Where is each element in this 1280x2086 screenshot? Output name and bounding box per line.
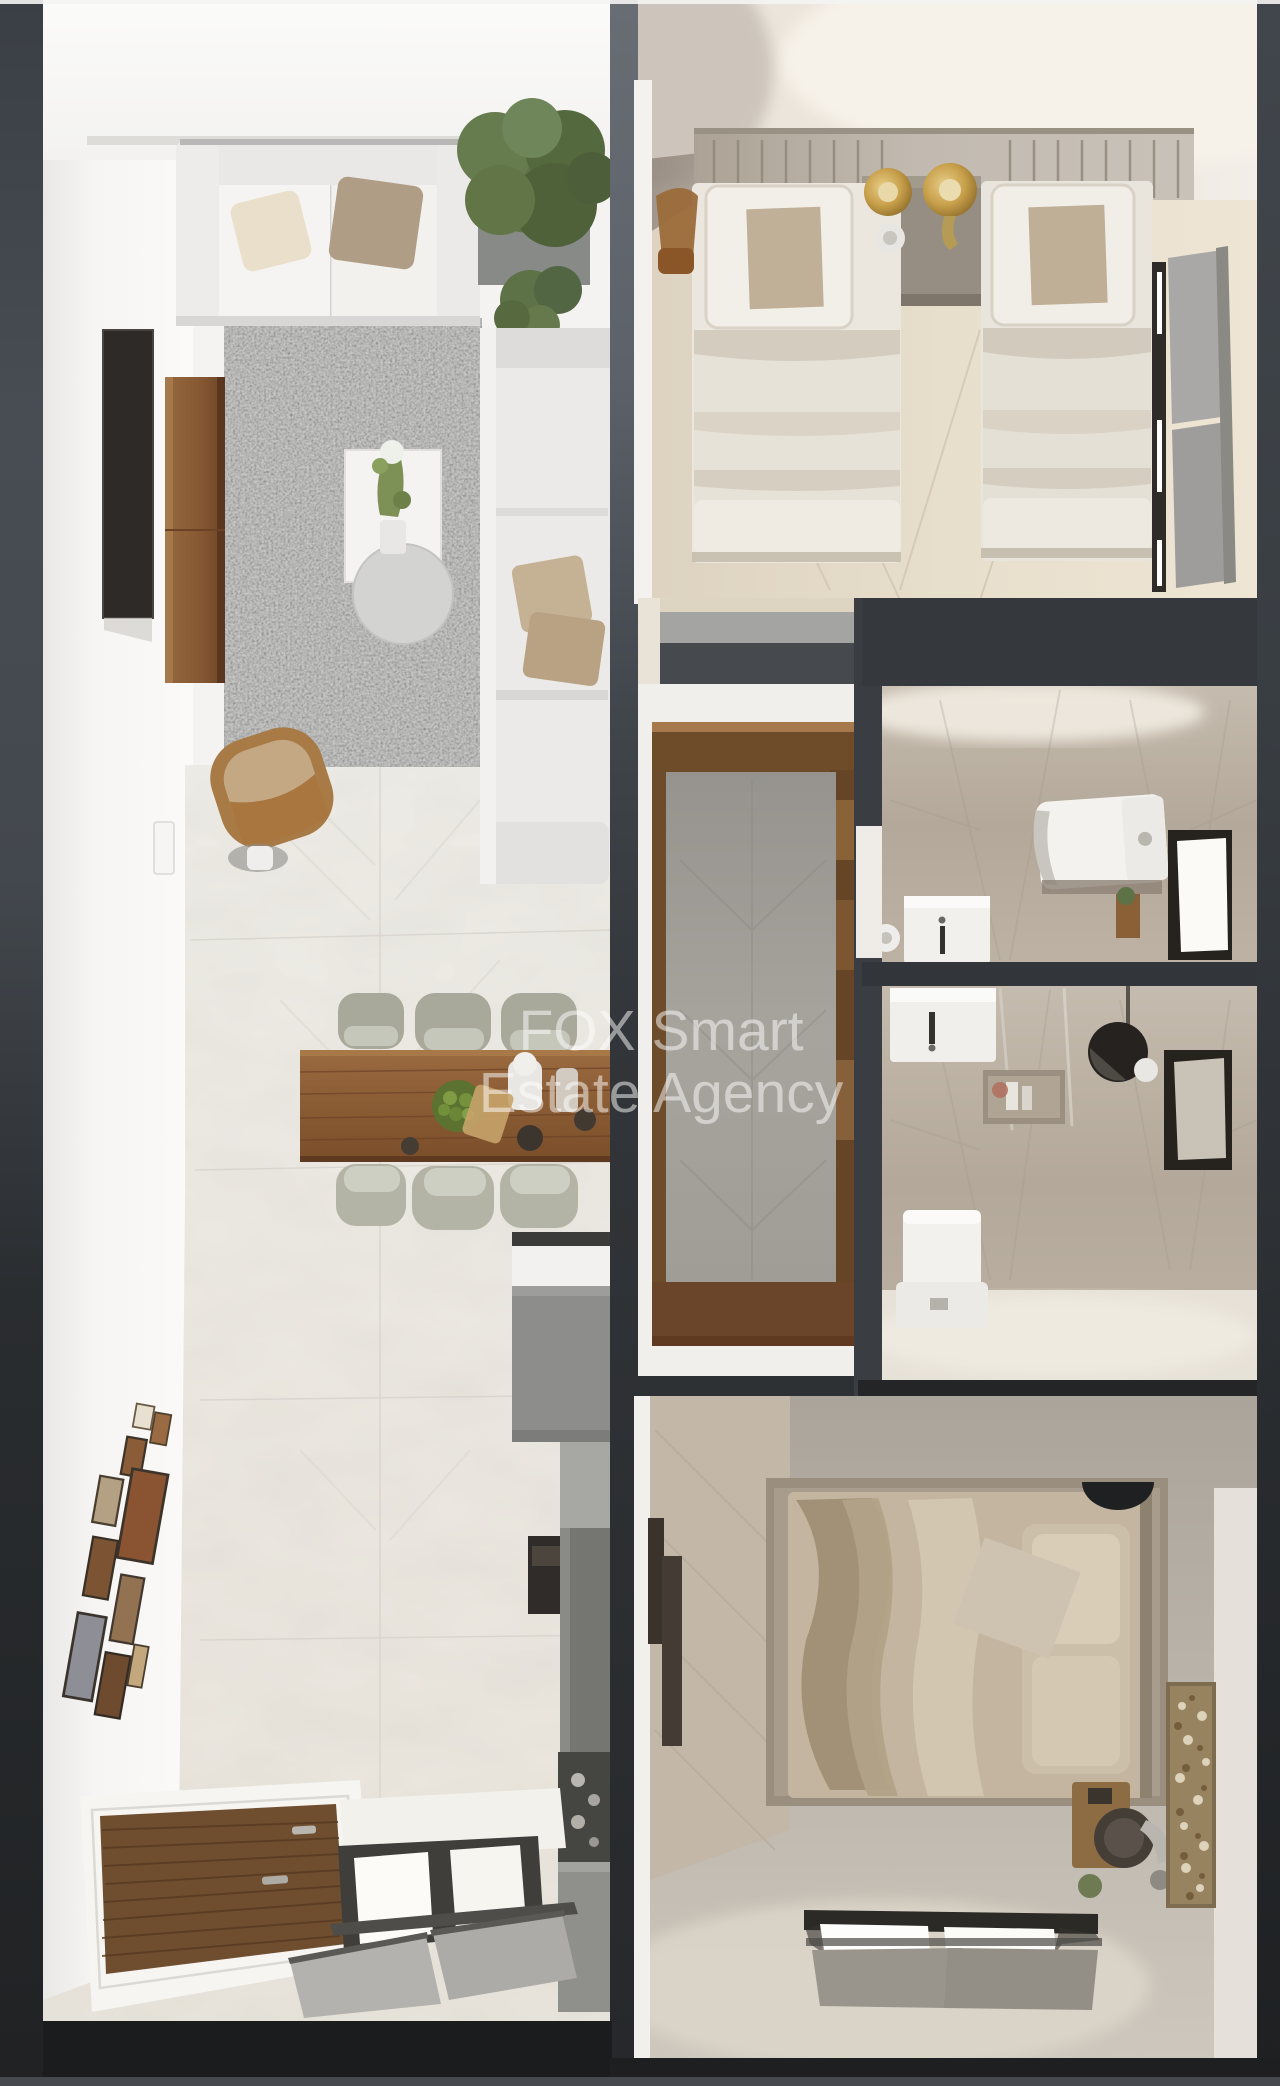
svg-text:Estate Agency: Estate Agency	[479, 1061, 844, 1125]
svg-text:FOX Smart: FOX Smart	[518, 999, 803, 1063]
